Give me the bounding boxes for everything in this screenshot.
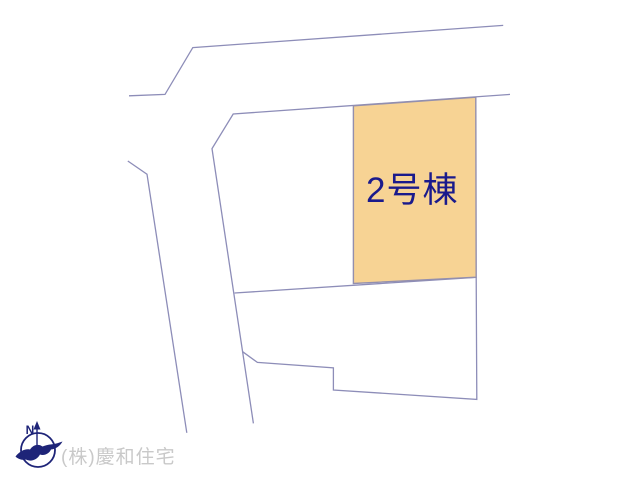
lower-parcel-boundary-line <box>243 277 477 399</box>
site-plan-drawing <box>0 0 640 480</box>
road-line-left-edge <box>128 161 187 433</box>
parcel-2-label: 2号棟 <box>366 173 458 210</box>
site-plan: 2号棟 N (株)慶和住宅 <box>0 0 640 480</box>
road-line-top <box>129 25 503 95</box>
compass-north-label: N <box>26 423 35 437</box>
company-watermark: (株)慶和住宅 <box>61 448 176 469</box>
compass-needle-head <box>34 421 41 430</box>
compass-icon: N <box>13 416 67 474</box>
